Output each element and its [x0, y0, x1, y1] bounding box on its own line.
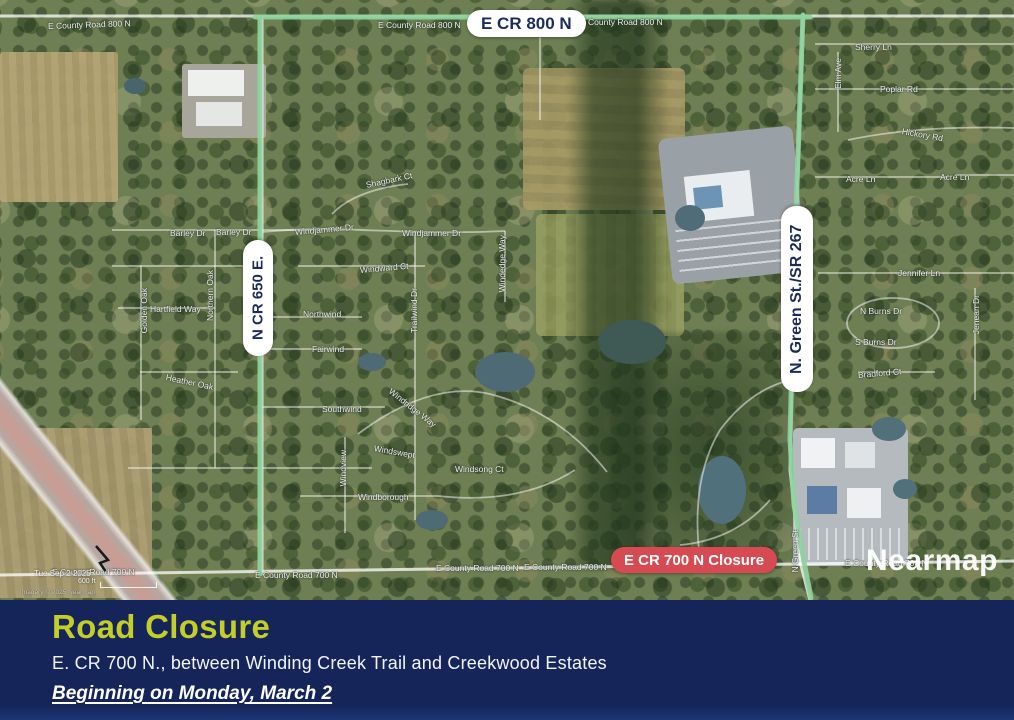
street-label: E County Road 800 N — [580, 17, 663, 27]
street-label: Windjammer Dr — [402, 228, 461, 238]
scale-bar — [100, 582, 157, 588]
street-label: Windedge Way — [497, 235, 507, 292]
flyer-title: Road Closure — [52, 608, 1014, 646]
scale-text: 600 ft — [78, 578, 96, 585]
street-label: Windswept — [373, 443, 416, 460]
street-label: Windjammer Dr — [295, 222, 355, 237]
street-label: Windridge Way — [387, 386, 438, 429]
route-label-left: N CR 650 E. — [243, 240, 273, 356]
street-label: Windward Ct — [360, 261, 409, 275]
street-label: Northwind — [303, 309, 341, 319]
street-label: Southwind — [322, 404, 362, 414]
closure-description: E. CR 700 N., between Winding Creek Trai… — [52, 653, 1014, 674]
street-label: E County Road 700 N — [255, 570, 338, 580]
street-label: Elm Ave — [833, 58, 843, 89]
capture-date: Tue Sep 2 2025 — [34, 569, 91, 578]
street-label: N Green St — [790, 530, 800, 573]
aerial-map: E County Road 800 NE County Road 800 NE … — [0, 0, 1014, 600]
street-label: Barley Dr — [170, 228, 205, 238]
closure-label: E CR 700 N Closure — [611, 547, 777, 573]
street-label: N Burns Dr — [860, 306, 902, 316]
street-label: Shagbark Ct — [365, 170, 413, 190]
street-labels-layer: E County Road 800 NE County Road 800 NE … — [0, 0, 1014, 600]
street-label: E County Road 800 N — [48, 18, 131, 31]
street-label: Bradford Ct — [858, 366, 902, 380]
street-label: E County Road 700 N — [436, 563, 519, 573]
street-label: Northern Oak — [205, 270, 215, 321]
street-label: Windborough — [358, 492, 409, 502]
street-label: E County Road 700 N — [524, 562, 607, 572]
street-label: Hickory Rd — [901, 126, 944, 143]
route-label-top: E CR 800 N — [467, 10, 586, 37]
street-label: Windsong Ct — [455, 464, 504, 474]
street-label: Jennifer Ln — [898, 268, 940, 278]
closure-start-date: Beginning on Monday, March 2 — [52, 683, 1014, 705]
imagery-attribution: Imagery © 2025 Nearmap — [20, 589, 95, 596]
street-label: Acre Ln — [846, 174, 875, 184]
street-label: Sherry Ln — [855, 42, 892, 52]
nearmap-watermark: Nearmap — [866, 544, 998, 578]
street-label: E County Road 800 N — [378, 20, 461, 30]
street-label: Heather Oak — [165, 372, 214, 392]
street-label: Acre Ln — [940, 172, 969, 182]
info-banner: Road Closure E. CR 700 N., between Windi… — [0, 600, 1014, 720]
street-label: Hartfield Way — [150, 304, 201, 314]
road-closure-flyer: E County Road 800 NE County Road 800 NE … — [0, 0, 1014, 720]
street-label: Windview — [338, 450, 348, 486]
street-label: Fairwind — [312, 344, 344, 354]
street-label: Golden Oak — [139, 288, 149, 333]
street-label: Barley Dr — [216, 227, 251, 237]
street-label: Jenean Dr — [971, 295, 981, 334]
street-label: Poplar Rd — [880, 84, 918, 94]
route-label-right: N. Green St./SR 267 — [781, 206, 813, 392]
street-label: Trailwind Dr — [409, 288, 419, 333]
street-label: S Burns Dr — [855, 337, 897, 347]
